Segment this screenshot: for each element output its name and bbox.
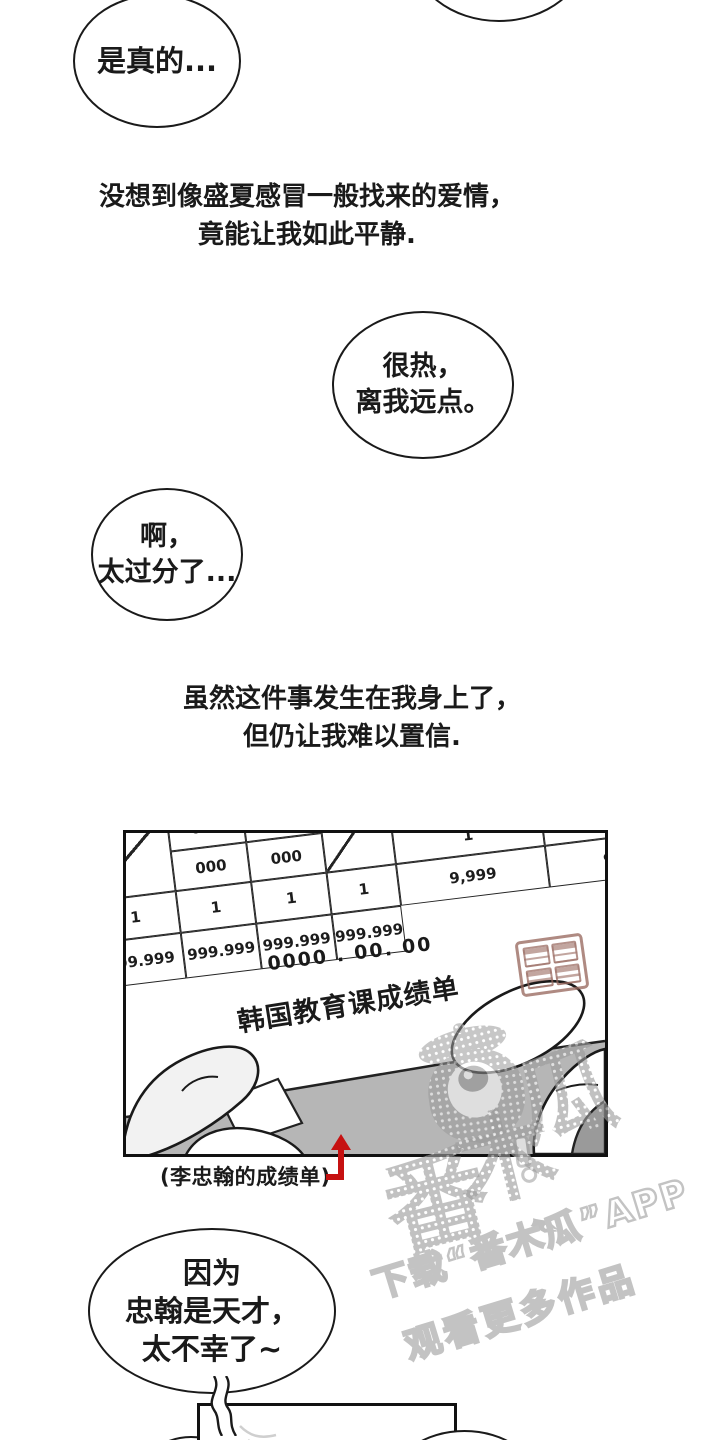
watermark-pen-icon: ✒ (522, 1201, 568, 1255)
speech-bubble-ah: 啊， 太过分了... (91, 488, 243, 621)
speech-bubble-its-true: 是真的... (73, 0, 241, 128)
speech-bubble-tail (198, 1376, 246, 1436)
narration-block-1: 没想到像盛夏感冒一般找来的爱情， 竟能让我如此平静. (27, 178, 587, 254)
red-up-arrow (322, 1130, 362, 1188)
watermark-logo-char: 番 (374, 1139, 500, 1265)
partial-speech-bubble-top-right (411, 0, 587, 22)
narration-line: 虽然这件事发生在我身上了， (72, 680, 632, 718)
mascot-exclamation-dot (520, 1166, 538, 1184)
narration-line: 没想到像盛夏感冒一般找来的爱情， (27, 178, 587, 216)
bubble-text: 因为 (183, 1254, 241, 1292)
bubble-text: 忠翰是天才， (125, 1292, 299, 1330)
watermark-download-text: 下载“番木瓜”APP (366, 1163, 695, 1309)
red-seal-stamp (514, 933, 589, 998)
speech-bubble-genius: 因为 忠翰是天才， 太不幸了~ (88, 1228, 336, 1394)
watermark-more-works-text: 观看更多作品 (398, 1250, 643, 1370)
comic-page: 是真的... 没想到像盛夏感冒一般找来的爱情， 竟能让我如此平静. 很热， 离我… (0, 0, 720, 1440)
bubble-text: 是真的... (97, 42, 217, 80)
bubble-text: 啊， (140, 519, 194, 555)
narration-line: 但仍让我难以置信. (72, 718, 632, 756)
bubble-text: 很热， (383, 349, 464, 385)
narration-line: 竟能让我如此平静. (27, 216, 587, 254)
comic-panel-report-card: 000 000 000 000 000 1 1 1 1 1 1 9,999 9,… (123, 830, 608, 1157)
bubble-text: 离我远点。 (356, 385, 491, 421)
speech-bubble-hot: 很热， 离我远点。 (332, 311, 514, 459)
narration-block-2: 虽然这件事发生在我身上了， 但仍让我难以置信. (72, 680, 632, 756)
panel-artwork: 000 000 000 000 000 1 1 1 1 1 1 9,999 9,… (126, 833, 605, 1154)
bubble-text: 太不幸了~ (142, 1330, 282, 1368)
bubble-text: 太过分了... (98, 555, 237, 591)
